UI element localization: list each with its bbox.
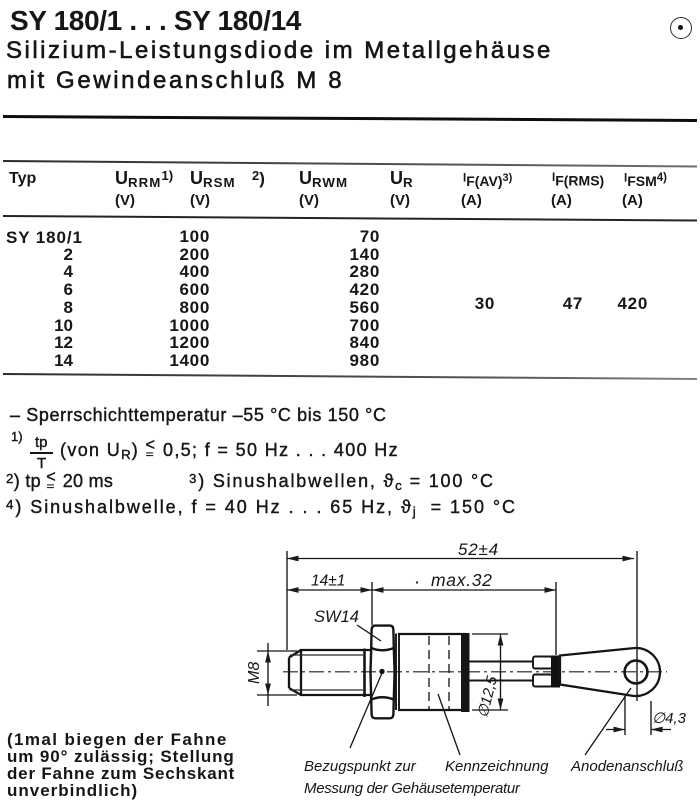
svg-text:SW14: SW14 <box>314 608 359 626</box>
svg-text:Anodenanschluß: Anodenanschluß <box>570 758 684 775</box>
svg-text:52±4: 52±4 <box>458 540 499 559</box>
svg-text:max.32: max.32 <box>431 570 493 590</box>
svg-text:14±1: 14±1 <box>311 573 345 590</box>
svg-text:Kennzeichnung: Kennzeichnung <box>445 758 549 775</box>
svg-text:∅4,3: ∅4,3 <box>652 710 687 727</box>
svg-text:Messung der Gehäusetemperatur: Messung der Gehäusetemperatur <box>304 780 521 797</box>
svg-text:M8: M8 <box>246 662 263 684</box>
svg-text:Bezugspunkt zur: Bezugspunkt zur <box>304 758 417 775</box>
